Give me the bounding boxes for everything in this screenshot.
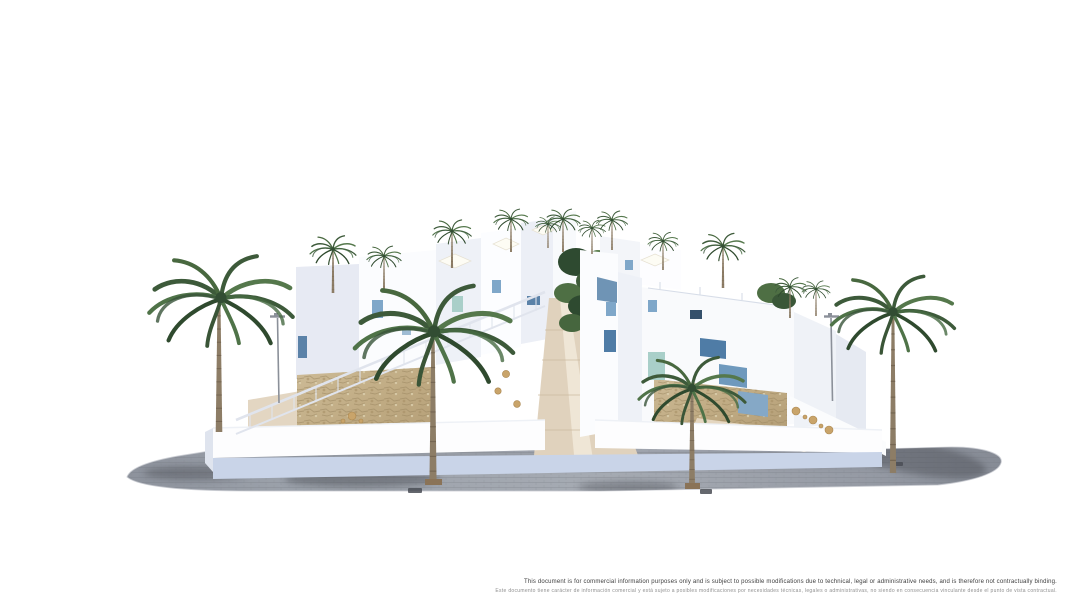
render-scene [0,0,1079,597]
left-building-row [248,211,576,451]
disclaimer-text: This document is for commercial informat… [495,578,1057,595]
palm-planter [425,479,442,485]
greenery [772,293,796,309]
disclaimer-line-english: This document is for commercial informat… [495,578,1057,587]
disclaimer-line-spanish: Este documento tiene carácter de informa… [495,588,1057,595]
street-lamp-left [270,313,285,403]
palm-planter [685,483,700,489]
page: This document is for commercial informat… [0,0,1079,597]
architectural-render [0,0,1079,597]
